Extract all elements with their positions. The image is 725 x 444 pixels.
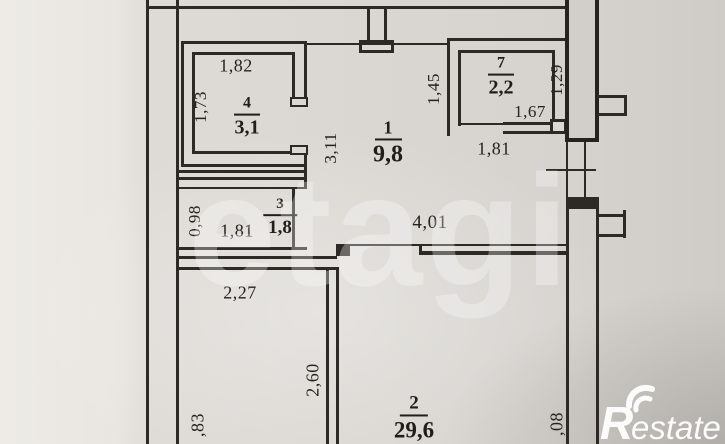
room-number: 7 <box>488 56 514 76</box>
room-area: 2,2 <box>488 77 514 98</box>
door-jamb-corridor-right <box>419 244 422 255</box>
balcony-tie-bottom-b <box>599 234 626 237</box>
room-area: 9,8 <box>373 142 403 167</box>
room-area: 3,1 <box>234 117 260 138</box>
dimension-label: 2,60 <box>303 363 324 397</box>
wall-outer-top <box>149 6 569 9</box>
room-number: 2 <box>400 393 428 416</box>
wall-room7-bottom-inner <box>503 122 553 125</box>
restate-logo-arc-large <box>629 388 652 406</box>
dimension-label: 1,29 <box>547 64 567 96</box>
wall-stub-foot <box>359 40 394 53</box>
balcony-tie-bottom-end <box>623 210 626 238</box>
window-line-left <box>566 142 568 200</box>
room-label-7: 7 2,2 <box>488 56 514 99</box>
wall-duct-stripe1 <box>179 170 307 173</box>
dimension-label: 1,82 <box>219 56 253 77</box>
restate-logo-r: R <box>600 397 633 444</box>
wall-room4-bottom-outer <box>181 164 307 167</box>
dimension-label: 1,45 <box>424 73 444 105</box>
wall-room4-bottom-inner <box>192 151 295 154</box>
wall-room7-left-inner <box>458 50 461 126</box>
room-label-2: 2 29,6 <box>394 393 434 442</box>
wall-room7-top-inner <box>458 50 555 53</box>
wall-stub-left <box>367 6 370 42</box>
dimension-label: 1,81 <box>477 139 511 160</box>
door-jamb-room4-top <box>290 97 308 107</box>
wall-column-bottom-right <box>596 209 599 444</box>
dimension-label: 1,67 <box>514 102 546 122</box>
wall-outer-left-line2 <box>176 0 179 444</box>
wall-room1-top <box>305 43 449 45</box>
wall-room4-right-outer-upper <box>304 41 307 102</box>
window-tick <box>546 169 596 171</box>
wall-duct-stripe2 <box>179 177 307 180</box>
restate-logo-text: estate <box>631 409 721 444</box>
wall-below-room3-line1 <box>179 256 337 259</box>
wall-room7-left-outer <box>447 38 450 136</box>
wall-lowerroom-right-line1 <box>326 267 329 444</box>
dimension-label: 2,27 <box>223 283 257 304</box>
room-label-1: 1 9,8 <box>373 118 403 167</box>
wall-column-bottom-cap <box>566 197 599 209</box>
balcony-tie-bottom-a <box>599 214 626 217</box>
balcony-tie-top-a <box>597 95 627 98</box>
room-area: 1,8 <box>263 218 297 238</box>
door-header-room7 <box>461 123 503 125</box>
door-jamb-room4-bottom <box>290 145 308 155</box>
balcony-tie-top-b <box>597 113 627 116</box>
wall-corridor-bottom-thin <box>339 244 568 246</box>
wall-outer-left-line1 <box>146 0 149 444</box>
dimension-label: ,08 <box>547 412 568 436</box>
dimension-label: 4,01 <box>412 212 447 234</box>
room-label-4: 4 3,1 <box>234 96 260 139</box>
wall-below-room3-line2 <box>179 267 337 270</box>
room-number: 1 <box>375 118 402 140</box>
wall-column-top-right <box>565 0 599 142</box>
room-number: 4 <box>234 96 260 116</box>
wall-room4-left-outer <box>181 41 184 167</box>
floor-plan-photo: 1,82 1,73 4 3,1 3,11 1 9,8 1,45 1,29 7 2… <box>0 0 725 444</box>
dimension-label: 1,73 <box>191 91 211 123</box>
wall-room4-top-outer <box>181 41 307 44</box>
restate-logo: R estate <box>594 382 725 444</box>
room-label-3: 3 1,8 <box>263 196 297 238</box>
restate-logo-arc-small <box>636 398 650 410</box>
balcony-tie-top-end <box>624 95 627 116</box>
dimension-label: 3,11 <box>321 132 341 163</box>
room-number: 3 <box>263 197 297 216</box>
wall-room3-bottom <box>179 247 307 250</box>
wall-corridor-bottom-right <box>419 251 568 255</box>
wall-room7-top-outer <box>447 38 567 41</box>
dimension-label: ,83 <box>188 413 209 437</box>
door-jamb-corridor-left <box>336 244 350 256</box>
room-area: 29,6 <box>394 418 434 442</box>
wall-column-bottom-left <box>566 209 569 444</box>
window-line-right <box>584 142 586 200</box>
wall-room3-top <box>179 187 307 189</box>
dimension-label: 0,98 <box>185 205 205 237</box>
wall-lowerroom-right-line2 <box>336 267 339 444</box>
wall-room4-right-inner-upper <box>292 52 295 102</box>
dimension-label: 1,81 <box>220 221 254 242</box>
wall-stub-right <box>384 6 387 42</box>
